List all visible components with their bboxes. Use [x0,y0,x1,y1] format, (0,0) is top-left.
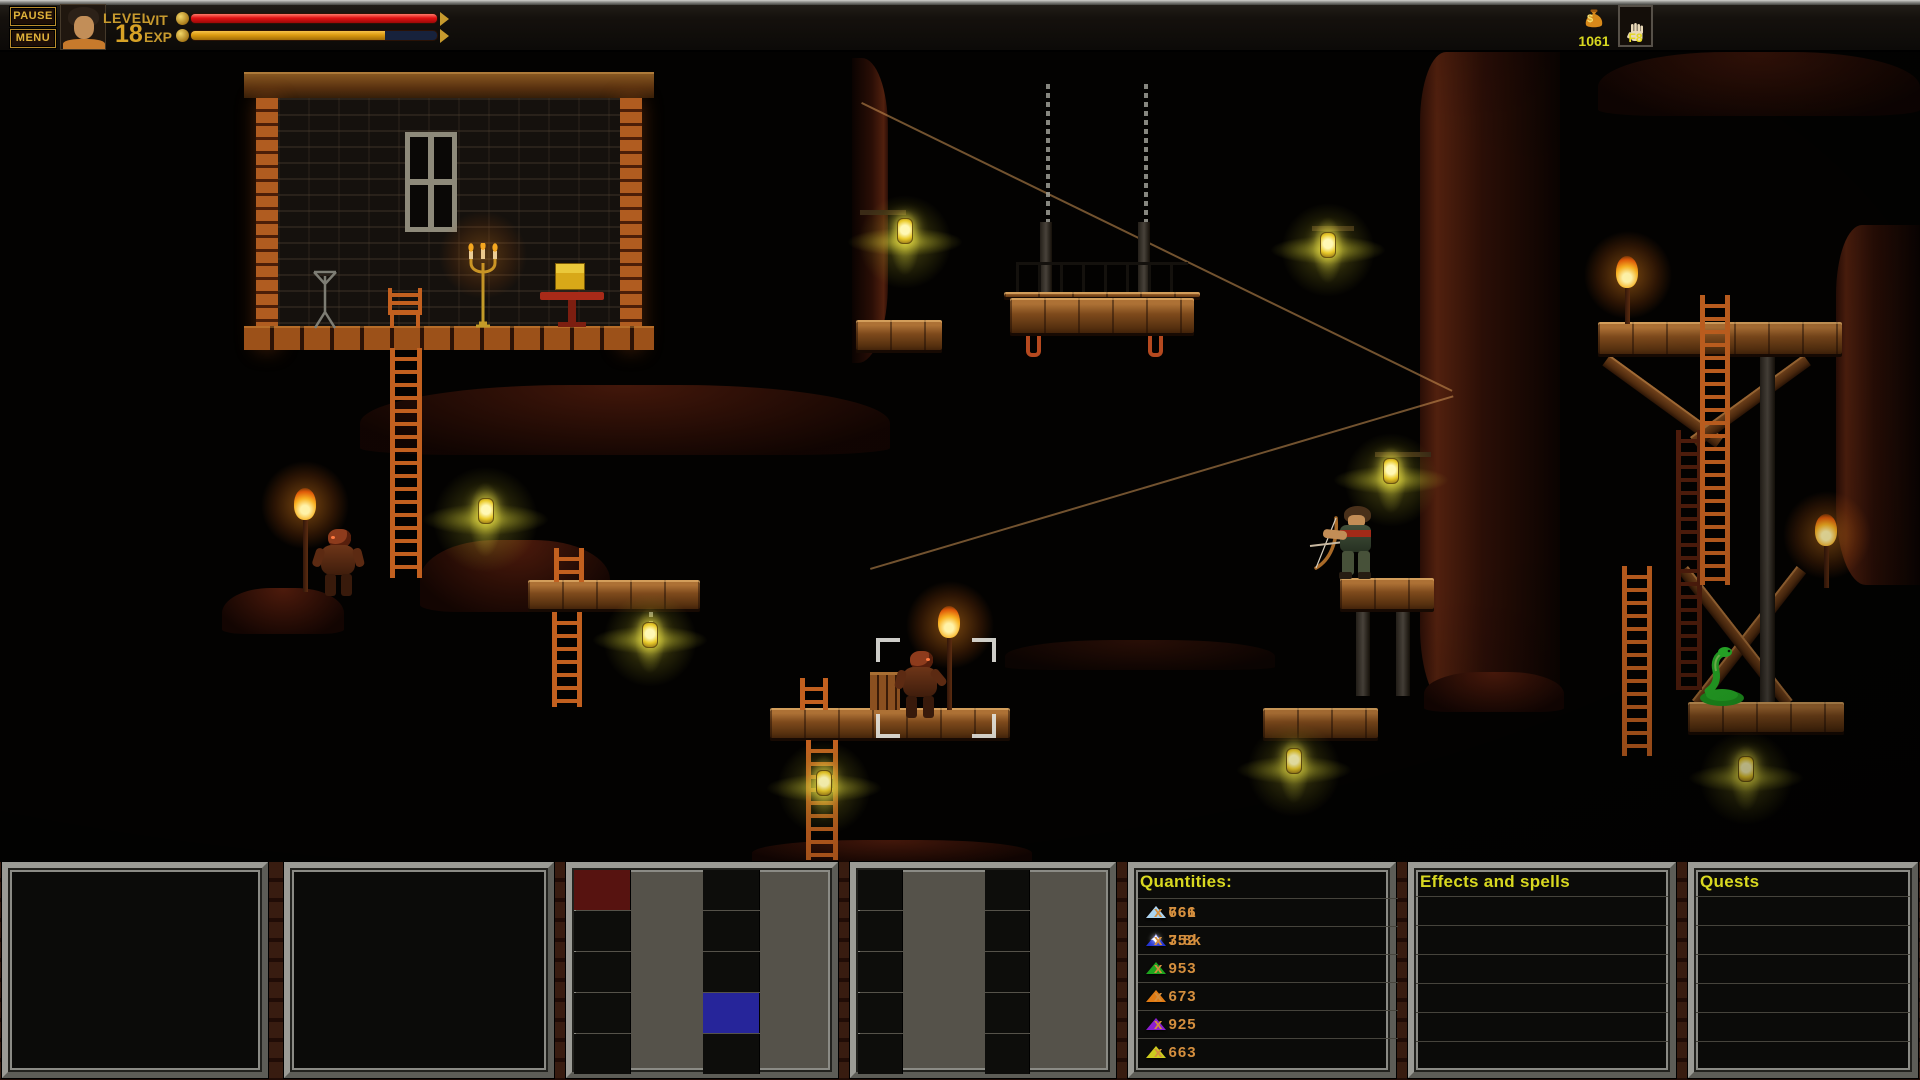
ladder [800,678,828,710]
gold-amount: 1061 [1568,33,1620,49]
effects-row [1416,925,1668,953]
house-brick-floor [244,326,654,350]
dirt-ledge [360,385,890,455]
quests-panel: Quests [1688,862,1918,1078]
chair-part [390,315,394,328]
lantern-icon [1320,232,1336,258]
ladder [806,740,838,860]
hook-icon [1148,336,1163,357]
house [256,62,642,350]
exp-bar [190,30,438,41]
house-roof-beam [244,72,654,98]
wooden-platform [856,320,942,353]
quests-row [1696,1012,1910,1040]
reticle-corner [876,638,900,662]
money-bag-icon [1581,4,1607,32]
dirt-ceiling [1598,52,1920,116]
hanging-platform [1010,298,1194,336]
torch-flame [1616,256,1638,288]
hotbar-slot-0[interactable]: 0 [703,1034,830,1074]
chair-part [388,288,392,312]
lantern-icon [897,218,913,244]
lantern-icon [1286,748,1302,774]
lantern-icon [1383,458,1399,484]
quantities-panel: Quantities: x 761 x 666 x 752 x 3.8k x 9… [1128,862,1396,1078]
chair-part [388,301,422,305]
reticle-corner [972,638,996,662]
chest-lid [556,264,584,273]
menu-button[interactable]: MENU [10,29,56,48]
hotkey-bar: F1 F2 F3 [1618,5,1914,47]
goblin-leg [325,574,336,596]
platform-post [1356,612,1370,696]
hotbar-slot-2[interactable]: 2 dmg45 [574,911,701,951]
hotbar-slot-3[interactable]: 3 dmg160 [574,952,701,992]
torch-flame [1815,514,1837,546]
goblin-leg [341,574,352,596]
quests-row [1696,1041,1910,1069]
dirt-wall [1420,52,1560,707]
lantern-bracket [1375,452,1431,457]
effects-row [1416,1041,1668,1069]
support-post [1760,357,1775,705]
chair-part [418,288,422,312]
alt-slot-6[interactable]: 6↑ [985,870,1110,910]
alt-slot-1[interactable]: 1↑ [858,870,983,910]
alt-slot-2[interactable]: 2↑ [858,911,983,951]
hotbar-slot-4[interactable]: 4 dmg240 [574,993,701,1033]
reticle-corner [972,714,996,738]
vit-bar [190,13,438,24]
ladder [552,612,582,707]
quests-row [1696,925,1910,953]
chair-part [388,293,422,297]
alt-hotbar-panel: 1↑ 2↑ 3↑ 4↑ 5↑ [850,862,1116,1078]
dirt-floor [752,840,1032,864]
game-screen: PAUSE MENU LEVEL 18 VIT EXP $ 1061 [0,0,1920,1080]
quests-row [1696,983,1910,1011]
hotbar-slot-1[interactable]: 1 polimorf x 8 [574,870,701,910]
vit-bar-cap [176,12,189,25]
platform-post [1396,612,1410,696]
hotbar-slot-9[interactable]: 9 dmg150 x 677 [703,993,830,1033]
effects-panel: Effects and spells [1408,862,1676,1078]
ladder [1700,295,1730,585]
lantern-icon [642,622,658,648]
effects-row [1416,954,1668,982]
alt-slot-5[interactable]: 5↑ [858,1034,983,1074]
lantern-icon [1738,756,1754,782]
empty-panel-1 [2,862,268,1078]
table-icon [540,292,604,328]
torch-flame [938,606,960,638]
exp-bar-arrow [440,29,449,43]
torch-flame [294,488,316,520]
effects-row [1416,1012,1668,1040]
lantern-bracket [860,210,906,215]
quantities-title: Quantities: [1140,872,1232,892]
player-character [1308,506,1396,582]
lantern-icon [478,498,494,524]
hook-icon [1026,336,1041,357]
quantity-value: x 3.8k [1154,932,1202,949]
ladder [1622,566,1652,756]
exp-bar-fill [191,31,385,40]
table-part [540,292,604,300]
ladder [390,348,422,578]
vit-bar-arrow [440,12,449,26]
effects-row [1416,896,1668,924]
wooden-platform [528,580,700,612]
torch-icon [1625,288,1630,324]
quantity-value: x 953 [1154,960,1197,977]
target-reticle-icon [876,638,996,738]
weapon-hotbar-panel: 1 polimorf x 8 2 [566,862,838,1078]
music-stand-icon [308,268,342,330]
hero-boot [1358,572,1371,579]
quantity-value: x 666 [1154,904,1197,921]
hotbar-slot-7[interactable]: 7 dmg260 [703,911,830,951]
chain-icon [1144,84,1148,226]
house-brick-wall [256,98,278,350]
chest-icon [555,263,585,290]
alt-slot-8[interactable]: 8↑ [985,952,1110,992]
quests-row [1696,954,1910,982]
alt-slot-9[interactable]: 9↑ [985,993,1110,1033]
pause-button[interactable]: PAUSE [10,7,56,26]
candelabra-icon [466,243,500,329]
goblin-eye [331,536,335,539]
effects-row [1416,983,1668,1011]
hotbar-slot-6[interactable]: 6 dmg160 [703,870,830,910]
fkey-label: F8 [1628,31,1642,45]
quests-row [1696,896,1910,924]
alt-slot-3[interactable]: 3↑ [858,952,983,992]
alt-slot-4[interactable]: 4↑ [858,993,983,1033]
lantern-icon [816,770,832,796]
house-brick-wall [620,98,642,350]
fslot-f8[interactable]: F8 [1618,5,1653,47]
quantity-value: x 673 [1154,988,1197,1005]
wooden-platform [1263,708,1378,741]
quantity-value: x 925 [1154,1016,1197,1033]
dirt-floor [1424,672,1564,712]
dollar-symbol: $ [1587,13,1593,25]
goblin-body [321,545,355,575]
dirt-ledge [1005,640,1275,670]
torch-icon [303,516,308,592]
hero-boot [1339,572,1352,579]
chain-icon [1046,84,1050,226]
effects-title: Effects and spells [1420,872,1570,892]
table-part [558,322,586,327]
alt-slot-0[interactable]: 0↑ [985,1034,1110,1074]
top-hud-bar: PAUSE MENU LEVEL 18 VIT EXP $ 1061 [0,0,1920,52]
vit-bar-fill [191,14,437,23]
bottom-panel-bar: 1 polimorf x 8 2 [0,862,1920,1080]
chair-icon [388,288,422,328]
dirt-wall [1836,225,1920,585]
portrait-hood [63,39,105,50]
empty-panel-2 [284,862,554,1078]
reticle-corner [876,714,900,738]
portrait-face [74,16,94,39]
level-value: 18 [115,20,143,49]
quantity-value: x 663 [1154,1044,1197,1061]
exp-label: EXP [144,29,172,45]
alt-slot-7[interactable]: 7↑ [985,911,1110,951]
chair-part [416,315,420,328]
quests-title: Quests [1700,872,1759,892]
vit-label: VIT [146,12,168,28]
table-part [568,300,576,322]
player-portrait[interactable] [60,4,106,50]
window-icon [405,132,457,232]
ladder [554,548,584,582]
hotbar-slot-5[interactable]: 5 dmg280 [574,1034,701,1074]
exp-bar-cap [176,29,189,42]
goblin-enemy[interactable] [310,524,368,598]
torch-icon [1824,546,1829,588]
gold-counter: $ 1061 [1568,2,1620,50]
hotbar-slot-8[interactable]: 8 dmg70 x 4.4k [703,952,830,992]
wooden-platform [1340,578,1434,612]
lantern-bracket [1312,226,1354,231]
snake-enemy[interactable] [1692,643,1752,707]
